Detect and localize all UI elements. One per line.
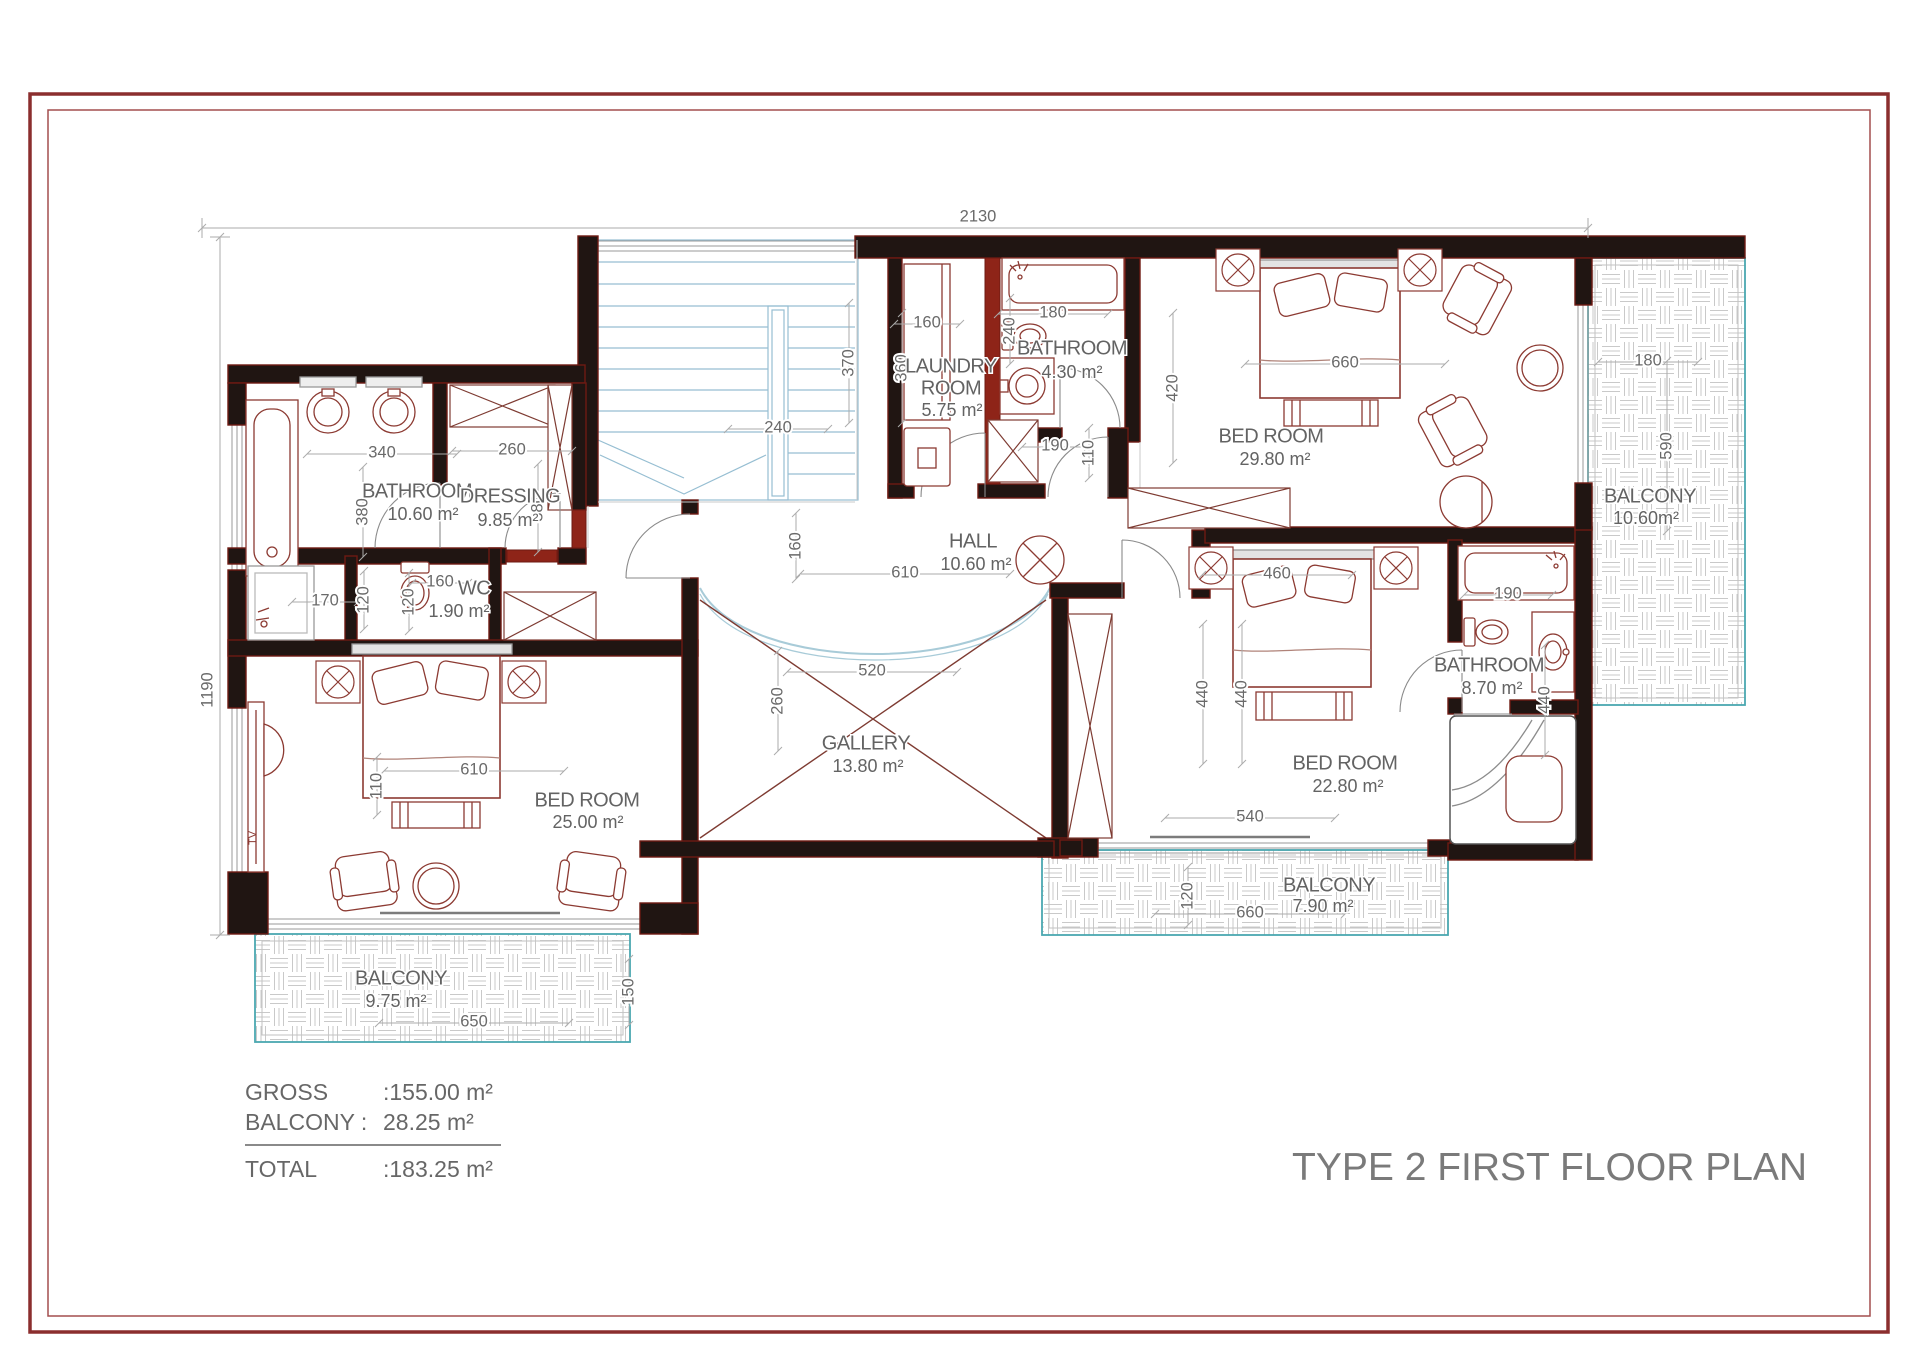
room-name: BED ROOM [1219,425,1324,447]
dim-label: 160 [426,572,454,590]
dim-label: 240 [1000,317,1018,345]
room-name: GALLERY [822,732,911,754]
gross-label: GROSS [245,1079,383,1106]
room-name: BALCONY [355,967,447,989]
summary-row-balcony: BALCONY : 28.25 m² [245,1109,515,1136]
room-area: 13.80 m² [832,756,903,776]
room-area: 10.60m² [1613,508,1679,528]
dimension: 110 [1079,424,1097,482]
room-label-group: GALLERY13.80 m² [822,732,911,775]
dim-label: 590 [1657,432,1675,460]
room-area: 4.30 m² [1041,362,1102,382]
room-area: 8.70 m² [1461,678,1522,698]
armchairs-bottom-left [328,850,627,913]
dim-label: 160 [786,532,804,560]
dim-label: 180 [1039,303,1067,321]
dim-label: 120 [354,586,372,614]
balcony-label: BALCONY : [245,1109,383,1136]
dimension: 240 [724,418,832,436]
closet-bedroom-br [1068,614,1112,838]
dim-label: 110 [367,773,385,799]
dim-label: 380 [353,498,371,526]
vanity-right-bathroom [1532,612,1574,692]
room-name: DRESSING [460,485,560,507]
dim-label: 110 [1079,440,1097,466]
dim-label: 370 [839,349,857,377]
toilet-right-bathroom [1464,618,1508,646]
balcony-bottom-right [1042,850,1448,935]
floor-plan-page: 2130119034038026038024037016036018024042… [0,0,1920,1357]
room-label-group: BATHROOM10.60 m² [362,480,472,523]
room-label-group: BED ROOM22.80 m² [1293,752,1398,795]
summary-row-total: TOTAL :183.25 m² [245,1156,515,1183]
staircase [592,240,858,500]
closet-corridor [988,420,1038,482]
dimension: 370 [839,299,857,427]
room-area: 10.60 m² [940,554,1011,574]
room-name: BATHROOM [1017,337,1127,359]
dim-label: 420 [1163,374,1181,402]
room-area: 7.90 m² [1292,896,1353,916]
bathtub-top [1002,258,1124,310]
dim-label: 260 [498,440,526,458]
dim-label: 340 [368,443,396,461]
dim-label: 170 [311,591,339,609]
total-label: TOTAL [245,1156,383,1183]
room-label-group: HALL10.60 m² [940,530,1011,573]
closet-bedroom-tr [1128,488,1290,528]
room-name: ROOM [921,377,981,399]
dim-label: 190 [1494,584,1522,602]
dim-label: 2130 [960,207,997,225]
room-name: WC [458,577,490,599]
bed-top-right [1250,260,1410,426]
dimension: 2130 [198,207,1592,238]
closet-dressing-top [450,385,555,427]
dim-label: 260 [768,687,786,715]
room-name: HALL [949,530,997,552]
dimension: 380 [353,463,371,561]
room-name: BED ROOM [535,789,640,811]
dim-label: 240 [764,418,792,436]
dim-label: 120 [1178,882,1196,910]
room-area: 9.85 m² [477,510,538,530]
dimension: 1190 [198,233,230,939]
dim-label: 440 [1193,680,1211,708]
room-label-group: BED ROOM29.80 m² [1219,425,1324,468]
dim-label: 660 [1236,903,1264,921]
summary-row-gross: GROSS :155.00 m² [245,1079,515,1106]
room-name: BALCONY [1283,874,1375,896]
dim-label: 610 [891,563,919,581]
dim-label: 520 [858,661,886,679]
dimension: 440 [1193,620,1211,768]
dim-label: 540 [1236,807,1264,825]
room-name: BATHROOM [362,480,472,502]
hall-light [1016,536,1064,584]
dim-label: 460 [1263,564,1291,582]
drawing-title: TYPE 2 FIRST FLOOR PLAN [1292,1146,1807,1190]
dimension: 260 [768,647,786,755]
bed-bottom-left [352,644,512,828]
dim-label: 440 [1232,680,1250,708]
tv-label: TV [247,830,259,845]
room-area: 1.90 m² [428,601,489,621]
room-name: BATHROOM [1434,654,1544,676]
total-value: :183.25 m² [383,1156,493,1183]
room-area: 29.80 m² [1239,449,1310,469]
summary-divider [245,1144,501,1146]
room-area: 5.75 m² [921,400,982,420]
dim-label: 190 [1041,436,1069,454]
dimension: 380 [528,460,546,556]
room-name: BED ROOM [1293,752,1398,774]
dim-label: 440 [1535,686,1553,714]
dimension: 420 [1163,309,1181,467]
armchairs-top-right [1414,257,1563,528]
dimension: 540 [1161,807,1339,825]
room-name: LAUNDRY [905,355,997,377]
dim-label: 660 [1331,353,1359,371]
room-name: BALCONY [1604,485,1696,507]
bathtub-top-left [246,400,298,576]
shower-tray-wc-row [248,566,314,640]
dim-label: 160 [913,313,941,331]
room-area: 9.75 m² [365,991,426,1011]
shower-room-bottom-right [1450,716,1576,844]
gallery-void [700,588,1050,838]
gross-value: :155.00 m² [383,1079,493,1106]
dim-label: 180 [1634,351,1662,369]
dim-label: 150 [619,978,637,1006]
dim-label: 650 [460,1012,488,1030]
tv-unit [248,702,284,872]
closet-wc-row [504,592,596,640]
dim-label: 1190 [198,672,216,707]
dim-label: 610 [460,760,488,778]
dim-label: 120 [399,588,417,616]
balcony-value: 28.25 m² [383,1109,474,1136]
room-label-group: BED ROOM25.00 m² [535,789,640,831]
room-label-group: BATHROOM8.70 m² [1434,654,1544,697]
double-sink-top-left [300,377,422,433]
area-summary: GROSS :155.00 m² BALCONY : 28.25 m² TOTA… [245,1076,515,1186]
room-area: 22.80 m² [1312,776,1383,796]
room-area: 10.60 m² [387,504,458,524]
room-area: 25.00 m² [552,812,623,832]
